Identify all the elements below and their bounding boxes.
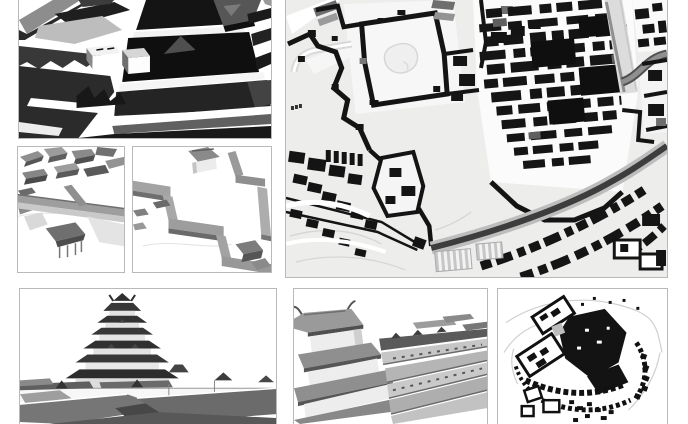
- panel-castle-map-small: [497, 288, 668, 424]
- panel-walls-aerial: [132, 146, 272, 273]
- panel-keep-closeup: [18, 0, 272, 139]
- panel-rooftop-view: [293, 288, 488, 424]
- castle-map-render: [286, 0, 667, 277]
- collage-canvas: [0, 0, 688, 424]
- tower-elevation-render: [20, 289, 276, 424]
- panel-tower-elevation: [19, 288, 277, 424]
- rooftop-view-render: [294, 289, 487, 424]
- panel-castle-map-large: [285, 0, 668, 278]
- castle-plan-render: [498, 289, 667, 424]
- keep-closeup-render: [19, 0, 271, 138]
- town-aerial-render: [18, 147, 124, 272]
- panel-town-aerial: [17, 146, 125, 273]
- pond-courtyard: [360, 10, 448, 105]
- walls-aerial-render: [133, 147, 271, 272]
